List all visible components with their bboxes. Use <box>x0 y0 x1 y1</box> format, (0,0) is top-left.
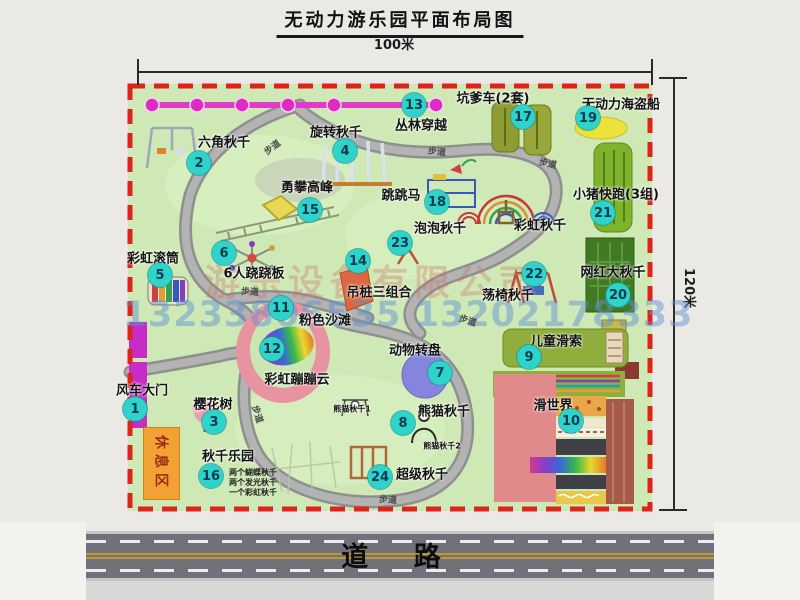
attraction-badge-6: 6 <box>212 241 236 265</box>
attraction-label-13: 丛林穿越 <box>395 115 447 134</box>
labels-layer: 两个蝴蝶秋千两个发光秋千一个彩虹秋千 1风车大门2六角秋千3樱花树4旋转秋千5彩… <box>0 0 800 600</box>
attraction-badge-10: 10 <box>559 409 583 433</box>
attraction-label-7: 动物转盘 <box>389 340 441 359</box>
trail-label-3: 步道 <box>538 155 558 171</box>
trail-label-2: 步道 <box>427 144 446 159</box>
attraction-label-16: 秋千乐园 <box>202 446 254 465</box>
attraction-badge-17: 17 <box>511 105 535 129</box>
attraction-badge-7: 7 <box>428 361 452 385</box>
attraction-badge-1: 1 <box>123 397 147 421</box>
attraction-badge-16: 16 <box>199 464 223 488</box>
attraction-label-1: 风车大门 <box>116 380 168 399</box>
attraction-badge-13: 13 <box>402 93 426 117</box>
attraction-badge-15: 15 <box>298 198 322 222</box>
small-label-1: 熊猫秋千1 <box>333 404 371 415</box>
attraction-label-2: 六角秋千 <box>198 132 250 151</box>
attraction-badge-12: 12 <box>260 337 284 361</box>
attraction-badge-22: 22 <box>522 262 546 286</box>
attraction-badge-3: 3 <box>202 410 226 434</box>
swing-park-note: 一个彩虹秋千 <box>229 488 277 498</box>
attraction-label-22: 荡椅秋千 <box>482 285 534 304</box>
attraction-label-12: 彩虹蹦蹦云 <box>264 369 329 388</box>
attraction-badge-4: 4 <box>333 139 357 163</box>
attraction-badge-23: 23 <box>388 231 412 255</box>
attraction-label-21: 小猪快跑(3组) <box>573 184 659 203</box>
attraction-label-15: 勇攀高峰 <box>281 177 333 196</box>
trail-label-6: 步道 <box>249 403 267 424</box>
attraction-badge-8: 8 <box>391 411 415 435</box>
park-map-page: 无动力游乐园平面布局图 100米 120米 <box>0 0 800 600</box>
attraction-badge-14: 14 <box>346 249 370 273</box>
attraction-badge-5: 5 <box>148 263 172 287</box>
attraction-badge-9: 9 <box>517 345 541 369</box>
small-label-2: 熊猫秋千2 <box>423 441 461 452</box>
attraction-label-8: 熊猫秋千 <box>418 401 470 420</box>
attraction-label-4: 旋转秋千 <box>310 122 362 141</box>
attraction-label-24: 超级秋千 <box>396 464 448 483</box>
attraction-label-20: 网红大秋千 <box>580 262 645 281</box>
trail-label-4: 步道 <box>241 284 260 298</box>
attraction-label-11: 粉色沙滩 <box>299 310 351 329</box>
attraction-badge-2: 2 <box>187 151 211 175</box>
trail-label-1: 步道 <box>261 136 283 157</box>
attraction-label-18: 跳跳马 <box>381 185 420 204</box>
attraction-label-14: 吊桩三组合 <box>346 282 411 301</box>
swing-park-note: 两个蝴蝶秋千 <box>229 468 277 478</box>
attraction-label-6: 6人跷跷板 <box>223 263 284 282</box>
attraction-label-23: 泡泡秋千 <box>414 218 466 237</box>
attraction-label-17: 坑爹车(2套) <box>457 88 530 107</box>
attraction-badge-21: 21 <box>591 201 615 225</box>
attraction-badge-18: 18 <box>425 190 449 214</box>
attraction-label-9: 儿童滑索 <box>530 331 582 350</box>
swing-park-note: 两个发光秋千 <box>229 478 277 488</box>
trail-label-5: 步道 <box>457 311 478 329</box>
attraction-badge-19: 19 <box>576 106 600 130</box>
attraction-badge-11: 11 <box>269 296 293 320</box>
swing-park-notes: 两个蝴蝶秋千两个发光秋千一个彩虹秋千 <box>229 468 277 498</box>
attraction-badge-20: 20 <box>606 283 630 307</box>
page-title: 无动力游乐园平面布局图 <box>277 6 524 38</box>
attraction-badge-24: 24 <box>368 465 392 489</box>
attraction-label-extra: 彩虹秋千 <box>514 215 566 234</box>
trail-label-7: 步道 <box>379 492 398 506</box>
